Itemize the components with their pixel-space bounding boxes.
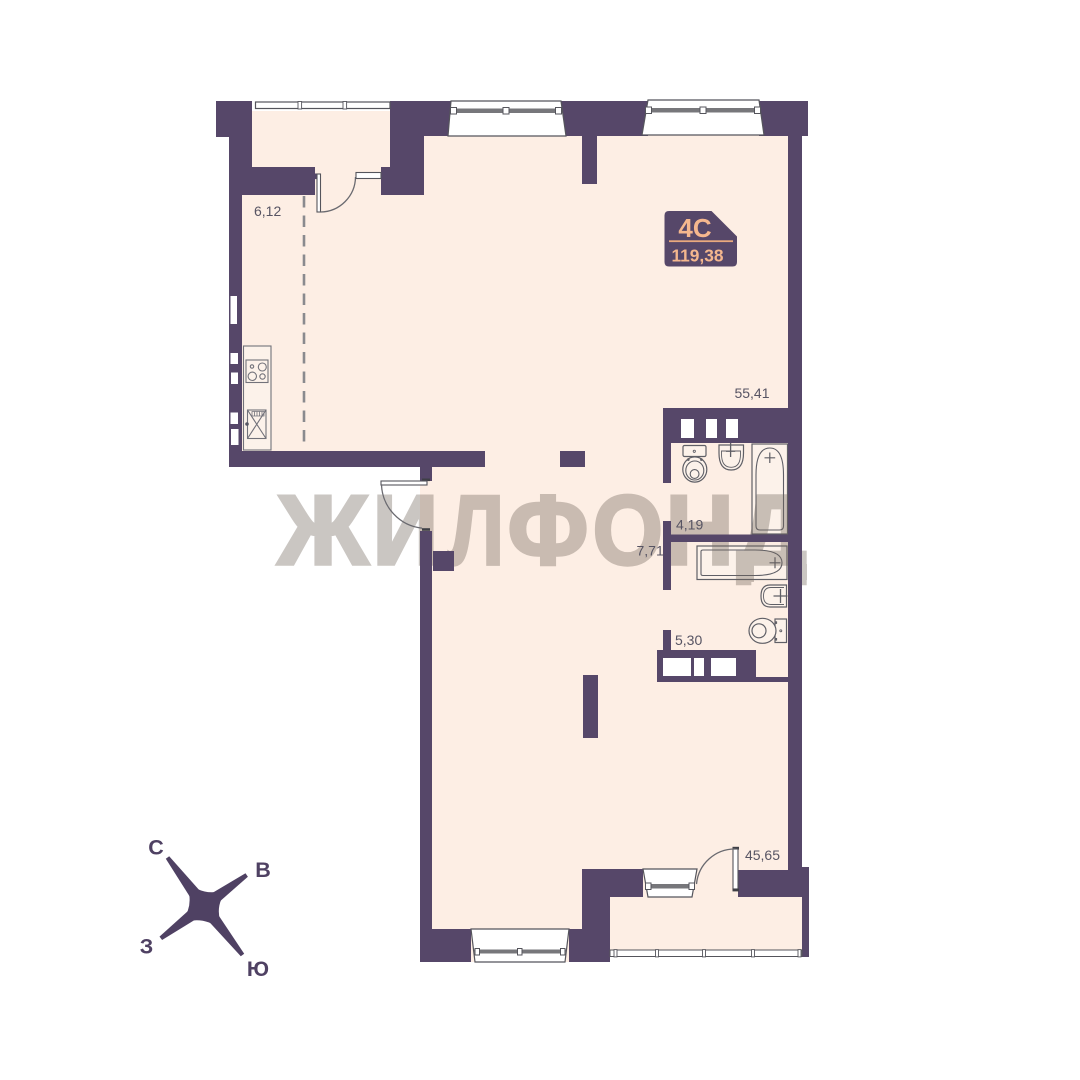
svg-text:5,30: 5,30 <box>675 632 702 648</box>
svg-text:О: О <box>593 475 663 584</box>
svg-text:Л: Л <box>448 475 503 585</box>
svg-text:З: З <box>140 935 153 959</box>
svg-text:4,19: 4,19 <box>676 517 703 533</box>
svg-text:6,12: 6,12 <box>254 203 281 219</box>
svg-text:45,65: 45,65 <box>745 847 780 863</box>
svg-text:С: С <box>148 836 164 860</box>
svg-text:119,38: 119,38 <box>672 246 724 266</box>
svg-text:55,41: 55,41 <box>734 385 769 401</box>
svg-text:7,71: 7,71 <box>637 543 664 559</box>
svg-text:4С: 4С <box>678 213 711 243</box>
svg-text:Ф: Ф <box>508 476 589 585</box>
svg-text:В: В <box>255 858 271 882</box>
svg-text:Ю: Ю <box>247 957 269 981</box>
svg-text:Ж: Ж <box>277 475 369 585</box>
